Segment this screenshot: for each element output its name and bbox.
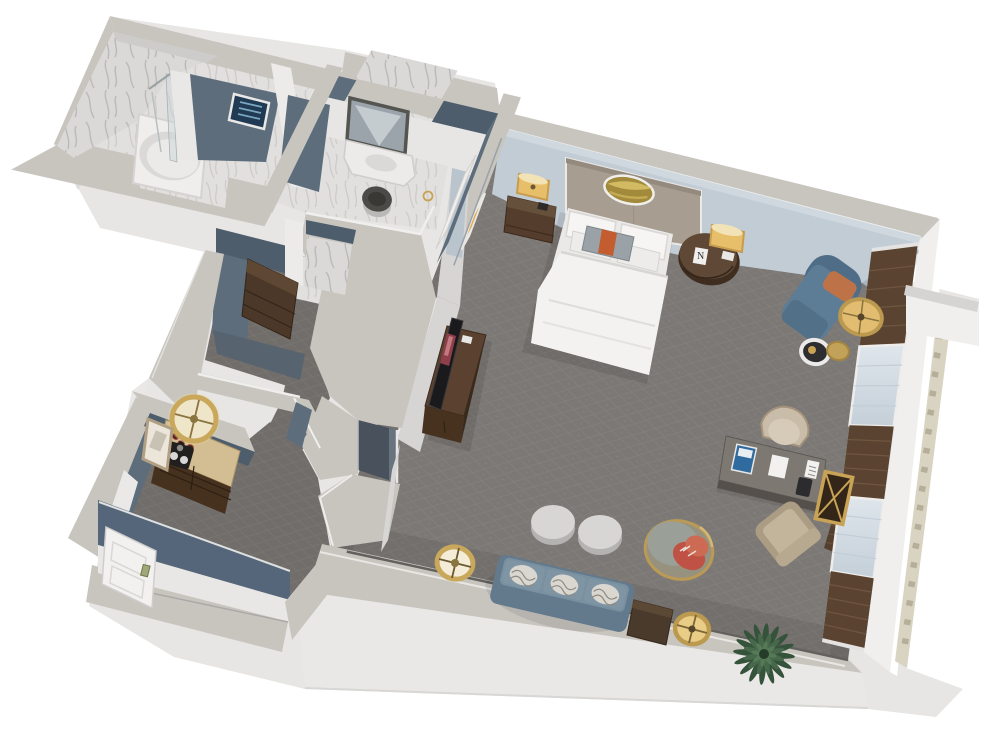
svg-text:N: N	[697, 251, 704, 262]
